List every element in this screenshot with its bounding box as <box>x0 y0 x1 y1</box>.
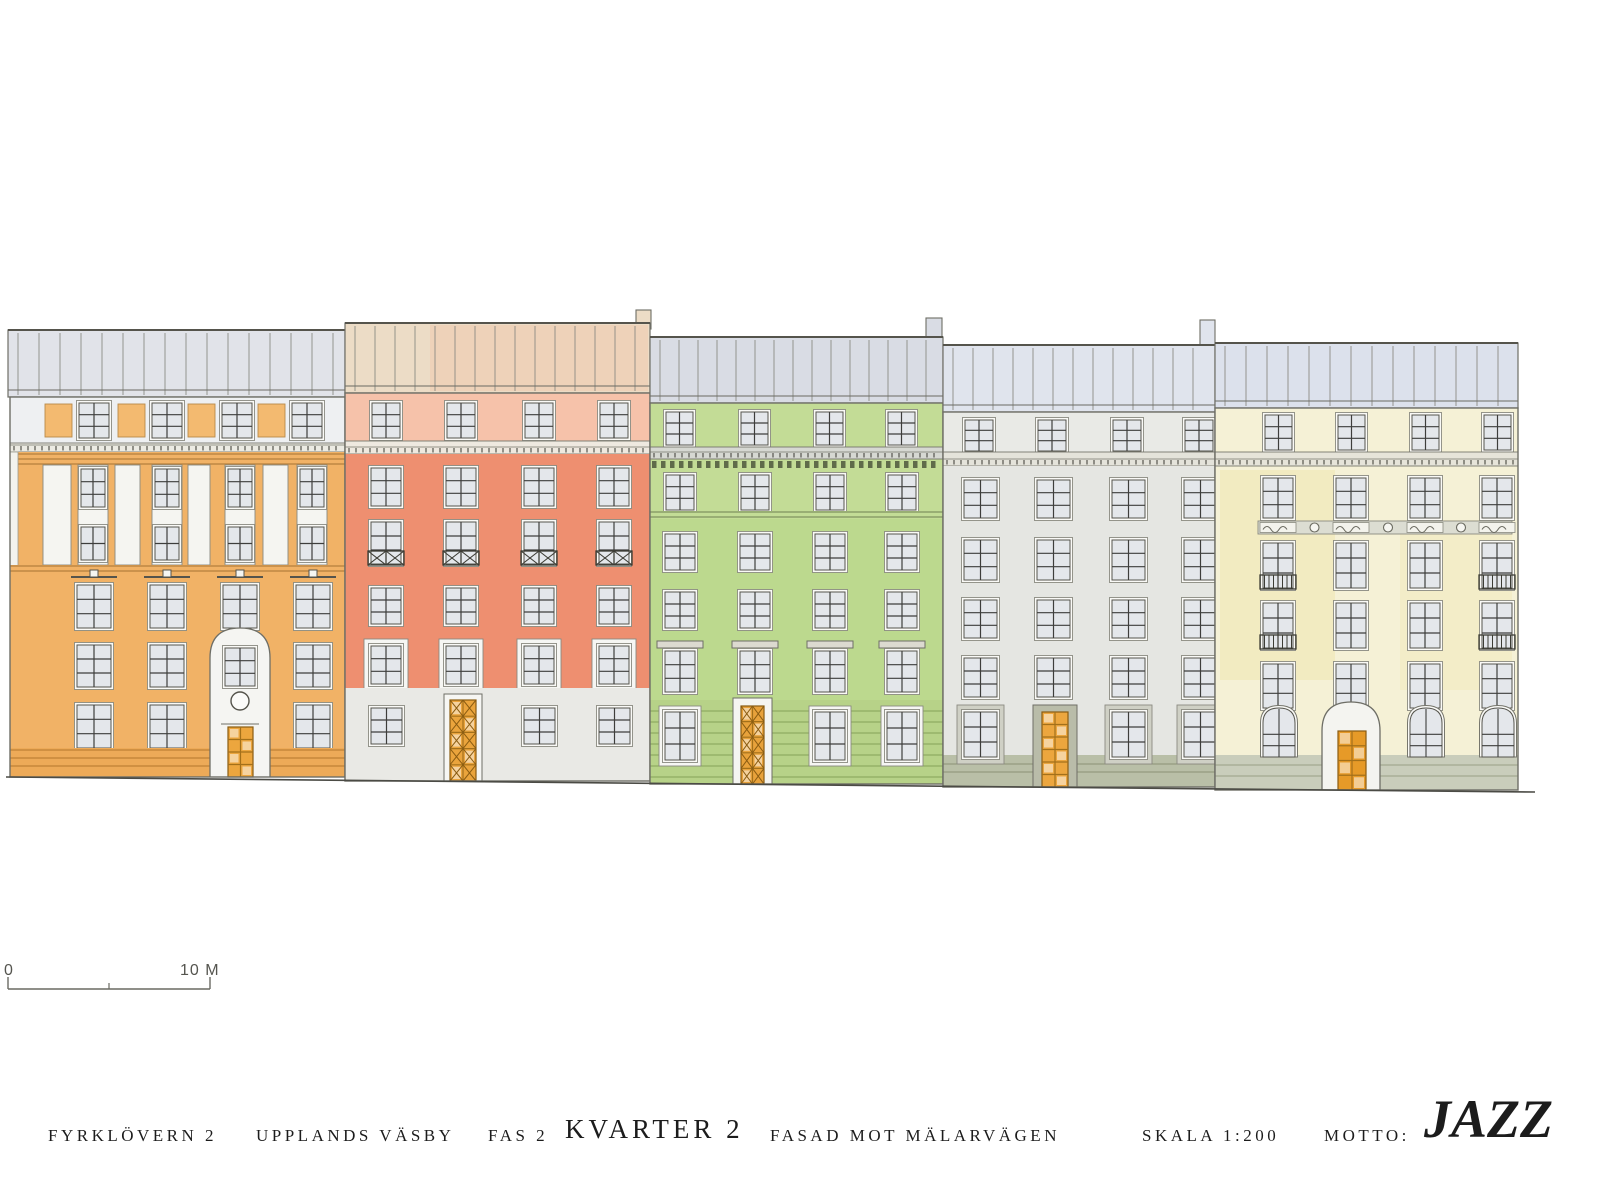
building-1-orange <box>8 330 345 777</box>
entrance-door <box>1338 731 1366 790</box>
location-name: UPPLANDS VÄSBY <box>256 1126 454 1146</box>
scale-label: SKALA 1:200 <box>1142 1126 1279 1146</box>
building-2-red <box>345 310 651 781</box>
facade-label: FASAD MOT MÄLARVÄGEN <box>770 1126 1060 1146</box>
roof <box>8 330 345 397</box>
facade-elevation-canvas <box>0 0 1600 1200</box>
roof <box>1215 343 1518 408</box>
building-4-grey <box>943 320 1224 787</box>
project-name: FYRKLÖVERN 2 <box>48 1126 217 1146</box>
entrance-door <box>733 698 772 784</box>
scalebar-end-label: 10 M <box>180 962 220 980</box>
ornament-frieze <box>1258 521 1515 534</box>
motto-value: JAZZ <box>1424 1088 1553 1150</box>
building-3-green <box>650 318 943 784</box>
roof <box>943 320 1215 412</box>
phase-label: FAS 2 <box>488 1126 548 1146</box>
entrance-door <box>1042 712 1068 787</box>
motto-label: MOTTO: <box>1324 1126 1410 1146</box>
elevation-drawing-sheet: 0 10 M FYRKLÖVERN 2 UPPLANDS VÄSBY FAS 2… <box>0 0 1600 1200</box>
entrance-door <box>444 694 482 781</box>
block-title: KVARTER 2 <box>565 1114 744 1145</box>
roof <box>345 310 651 393</box>
scalebar-zero-label: 0 <box>4 962 14 980</box>
roof <box>650 318 943 403</box>
window-row <box>223 646 258 689</box>
entrance-door <box>228 727 253 777</box>
building-5-yellow <box>1215 343 1518 790</box>
